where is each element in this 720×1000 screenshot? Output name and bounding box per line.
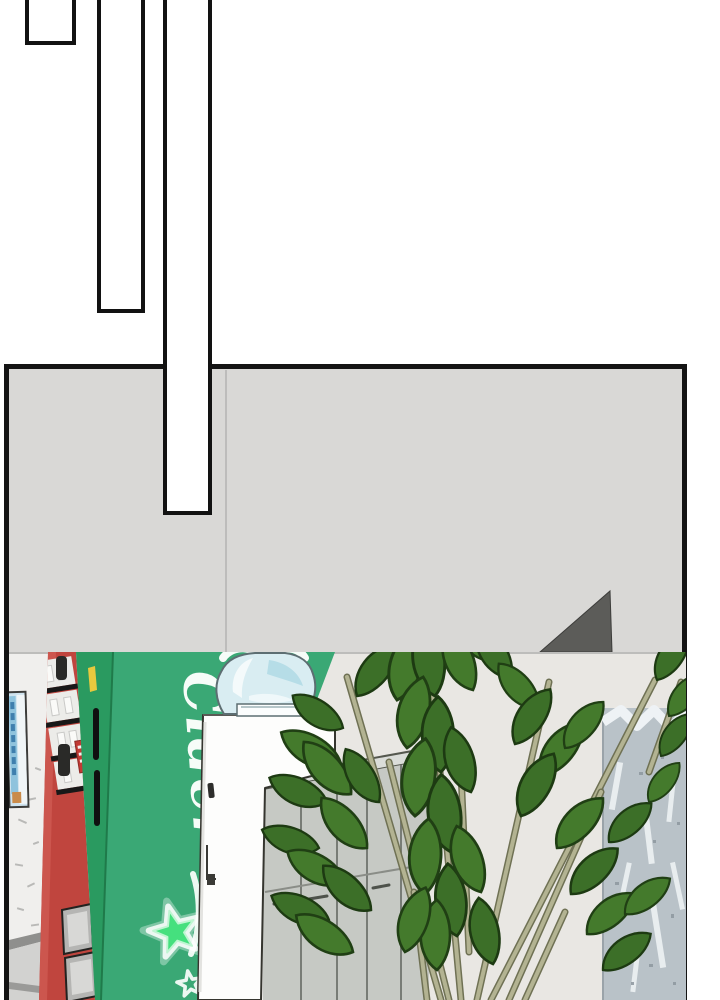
comic-page: Cider: [0, 0, 720, 1000]
wall-poster: [9, 692, 28, 807]
transition-bar-short: [25, 0, 76, 45]
machine-handle: [56, 656, 67, 680]
photo-panel: Cider: [9, 652, 686, 1000]
transition-bar-long: [163, 0, 212, 515]
transition-bar-medium: [97, 0, 145, 313]
triangle-shadow: [9, 560, 686, 652]
